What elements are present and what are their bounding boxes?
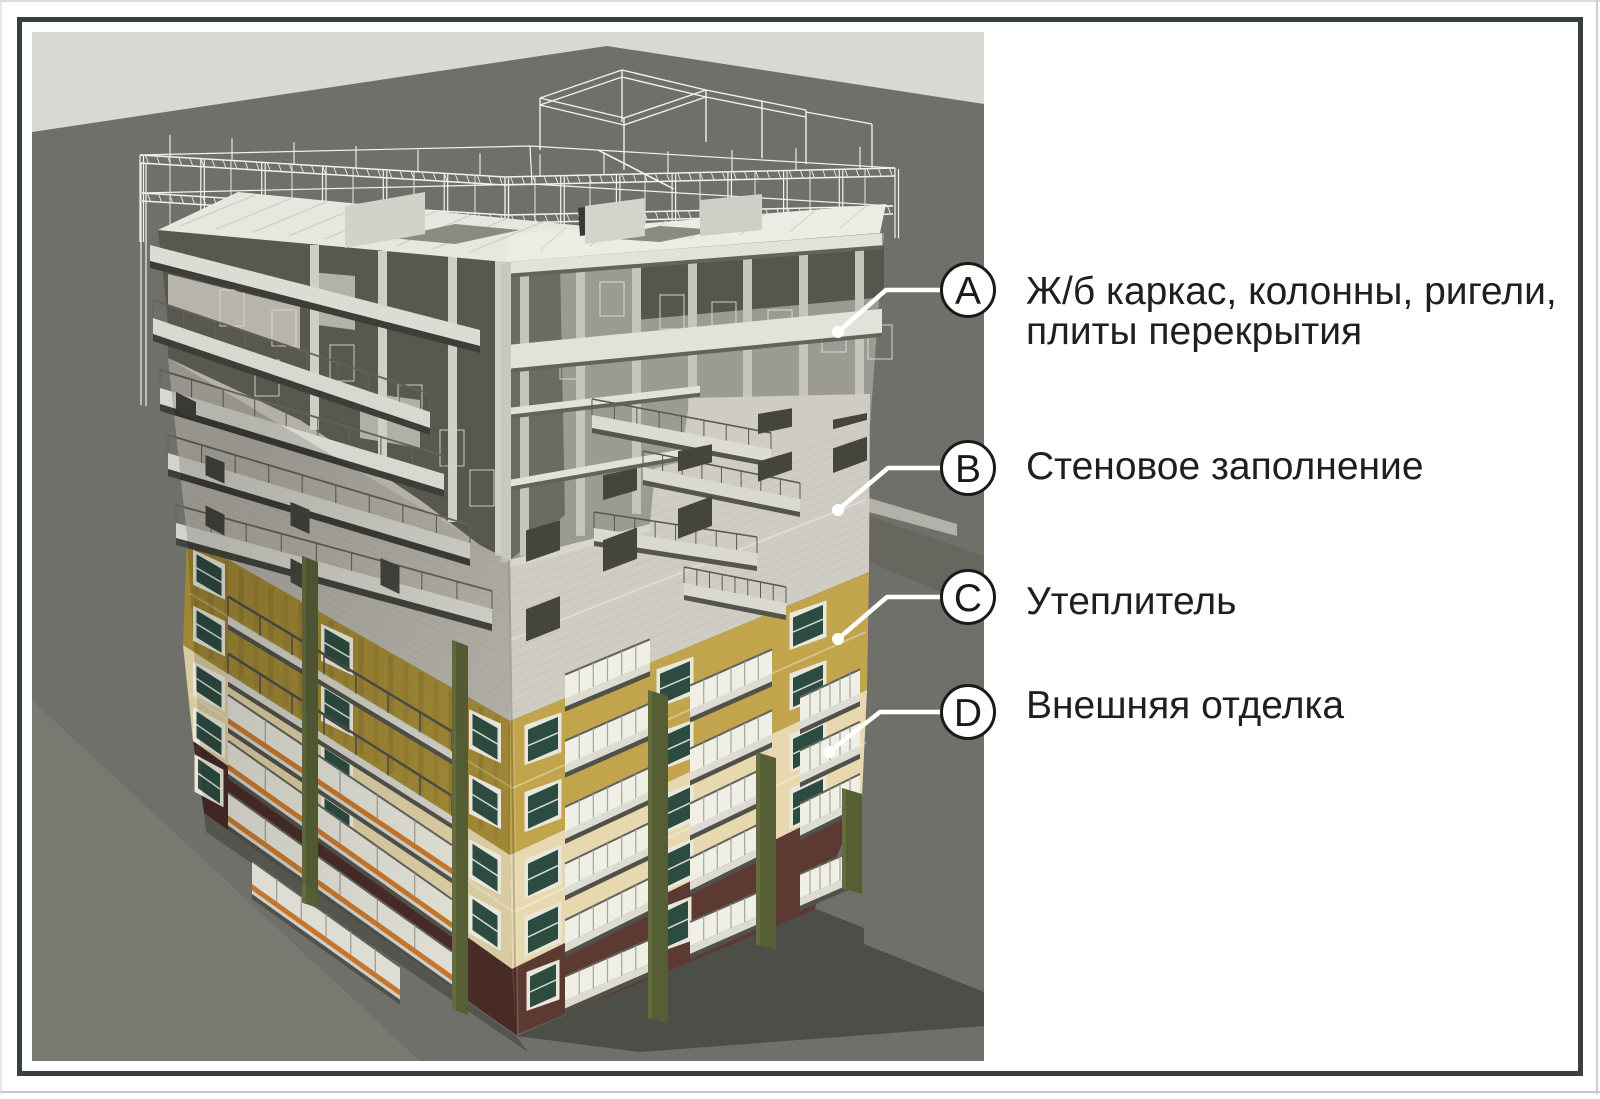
svg-text:A: A bbox=[955, 270, 981, 313]
svg-text:B: B bbox=[955, 448, 981, 491]
svg-text:Стеновое заполнение: Стеновое заполнение bbox=[1026, 445, 1424, 488]
svg-text:D: D bbox=[954, 692, 982, 735]
svg-text:C: C bbox=[954, 577, 982, 620]
svg-text:плиты перекрытия: плиты перекрытия bbox=[1026, 310, 1362, 353]
svg-text:Утеплитель: Утеплитель bbox=[1026, 580, 1236, 623]
svg-text:Внешняя отделка: Внешняя отделка bbox=[1026, 684, 1344, 727]
svg-text:Ж/б каркас, колонны, ригели,: Ж/б каркас, колонны, ригели, bbox=[1026, 270, 1557, 313]
